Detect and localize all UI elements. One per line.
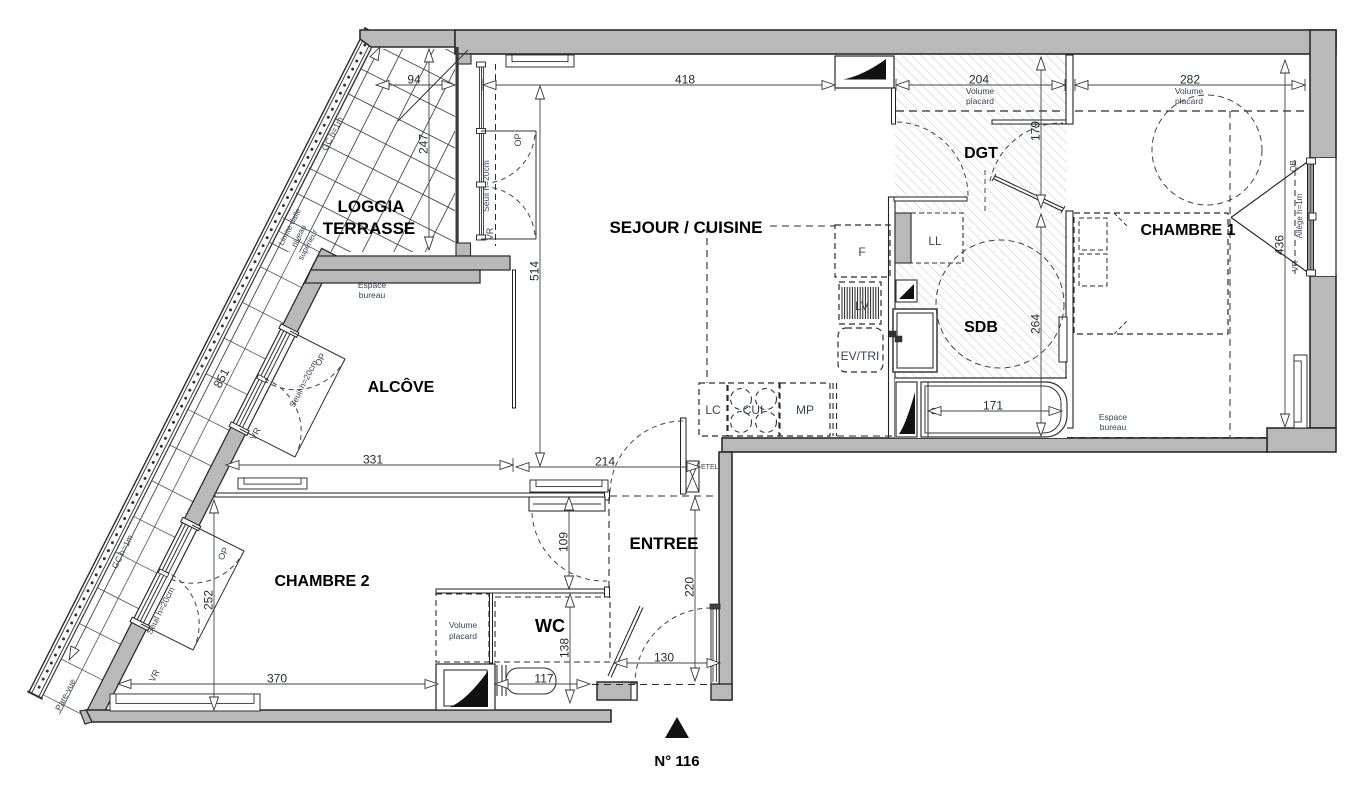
svg-text:TERRASSE: TERRASSE (323, 219, 416, 238)
svg-text:ENTREE: ENTREE (630, 534, 699, 553)
svg-text:EV/TRI: EV/TRI (841, 349, 880, 363)
svg-text:WC: WC (535, 616, 565, 636)
svg-text:LV: LV (855, 299, 869, 313)
svg-text:QB: QB (1289, 160, 1298, 172)
svg-text:LL: LL (928, 234, 942, 248)
svg-text:94: 94 (407, 73, 421, 87)
svg-text:VR: VR (1291, 260, 1300, 271)
svg-text:436: 436 (1273, 235, 1287, 255)
svg-text:Volume: Volume (449, 620, 478, 630)
svg-text:F: F (858, 245, 865, 259)
svg-text:Espace: Espace (1099, 412, 1128, 422)
svg-text:SDB: SDB (964, 319, 998, 336)
svg-text:placard: placard (1175, 96, 1203, 106)
svg-text:264: 264 (1029, 314, 1043, 334)
svg-text:CHAMBRE 2: CHAMBRE 2 (274, 573, 369, 590)
svg-text:placard: placard (449, 631, 477, 641)
svg-text:LOGGIA: LOGGIA (337, 197, 404, 216)
svg-text:LC: LC (705, 403, 721, 417)
svg-text:Seuil h=20cm: Seuil h=20cm (481, 160, 491, 212)
svg-text:MP: MP (796, 403, 814, 417)
svg-text:220: 220 (683, 577, 697, 597)
svg-text:117: 117 (534, 672, 553, 686)
svg-text:109: 109 (557, 532, 571, 552)
svg-text:179: 179 (1029, 121, 1043, 141)
svg-text:138: 138 (558, 638, 572, 658)
svg-text:Allège h=1m: Allège h=1m (1295, 193, 1304, 238)
svg-text:CHAMBRE 1: CHAMBRE 1 (1140, 222, 1235, 239)
svg-text:CUI: CUI (743, 403, 764, 417)
svg-text:282: 282 (1180, 73, 1200, 87)
svg-text:bureau: bureau (1100, 422, 1127, 432)
svg-text:514: 514 (528, 261, 542, 281)
svg-text:252: 252 (202, 590, 216, 610)
svg-text:247: 247 (417, 134, 431, 154)
svg-text:204: 204 (969, 73, 989, 87)
svg-text:331: 331 (363, 453, 383, 467)
svg-text:Espace: Espace (358, 280, 387, 290)
svg-text:ALCÔVE: ALCÔVE (368, 377, 435, 396)
svg-text:ETEL: ETEL (701, 464, 719, 471)
svg-text:VR: VR (485, 227, 495, 240)
svg-text:N° 116: N° 116 (654, 753, 699, 770)
svg-text:DGT: DGT (964, 145, 998, 162)
svg-text:Volume: Volume (966, 86, 995, 96)
svg-text:130: 130 (654, 651, 674, 665)
svg-text:SEJOUR / CUISINE: SEJOUR / CUISINE (609, 218, 762, 237)
svg-text:370: 370 (267, 672, 287, 686)
svg-text:418: 418 (675, 73, 695, 87)
svg-text:214: 214 (595, 455, 615, 469)
svg-text:OP: OP (513, 133, 523, 146)
svg-text:placard: placard (966, 96, 994, 106)
svg-text:Volume: Volume (1175, 86, 1204, 96)
svg-text:171: 171 (983, 399, 1003, 413)
svg-text:bureau: bureau (359, 290, 386, 300)
